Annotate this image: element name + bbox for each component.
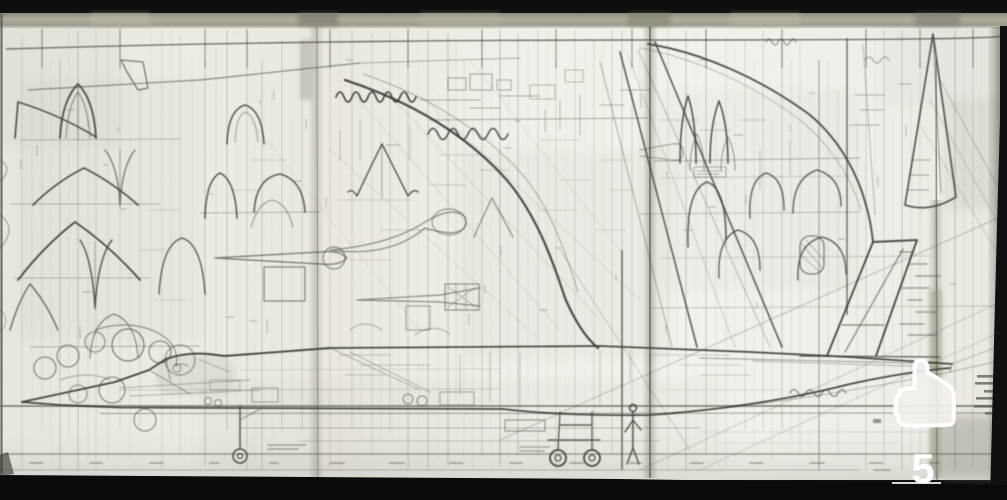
svg-text:5: 5 [911,445,934,492]
